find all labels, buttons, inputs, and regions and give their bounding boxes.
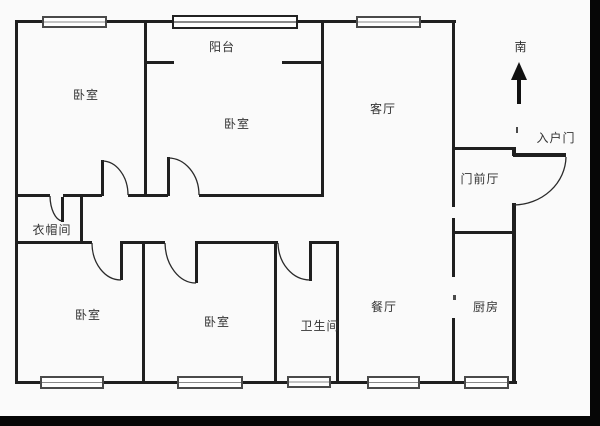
room-label-bedroom-bottom-middle: 卧室: [204, 316, 230, 328]
room-label-kitchen: 厨房: [473, 301, 499, 313]
compass-arrow-shaft: [517, 79, 521, 104]
room-label-bedroom-top-left: 卧室: [73, 89, 99, 101]
window-kitchen: [464, 376, 509, 389]
room-label-cloakroom: 衣帽间: [32, 224, 71, 236]
window-bedroom-bottom-middle: [177, 376, 243, 389]
door-swing-arcs: [0, 0, 600, 426]
room-label-living-room: 客厅: [370, 103, 396, 115]
window-dining-room: [367, 376, 420, 389]
door-arc-bedroom-top-middle: [168, 158, 199, 195]
window-balcony: [172, 15, 298, 29]
crop-bar-right: [590, 0, 600, 426]
window-bedroom-bottom-left: [40, 376, 104, 389]
room-label-balcony: 阳台: [209, 41, 235, 53]
floor-plan: 南 阳台 卧室 卧室 客厅 门前厅 衣帽间 卧室 卧室 卫生间 餐厅 厨房 入户…: [0, 0, 600, 426]
door-arc-bedroom-bottom-left: [92, 243, 121, 280]
door-arc-bedroom-bottom-middle: [165, 243, 196, 283]
crop-bar-bottom: [0, 416, 600, 426]
window-bedroom-top-left: [42, 16, 107, 28]
room-label-bathroom: 卫生间: [300, 320, 339, 332]
kitchen-door-tick-mark: [453, 295, 456, 300]
compass-south-label: 南: [514, 41, 527, 53]
compass-arrow-head: [511, 62, 527, 80]
room-label-bedroom-top-middle: 卧室: [224, 118, 250, 130]
window-bathroom: [287, 376, 331, 388]
window-living-room: [356, 16, 421, 28]
room-label-bedroom-bottom-left: 卧室: [75, 309, 101, 321]
entrance-tick-mark: [516, 127, 518, 133]
door-arc-cloakroom: [50, 196, 62, 221]
door-arc-bathroom: [278, 243, 310, 280]
room-label-front-hall: 门前厅: [460, 173, 499, 185]
door-arc-bedroom-top-left: [102, 161, 128, 195]
entrance-door-label: 入户门: [536, 132, 575, 144]
door-arc-entrance: [514, 157, 566, 205]
room-label-dining-room: 餐厅: [371, 301, 397, 313]
